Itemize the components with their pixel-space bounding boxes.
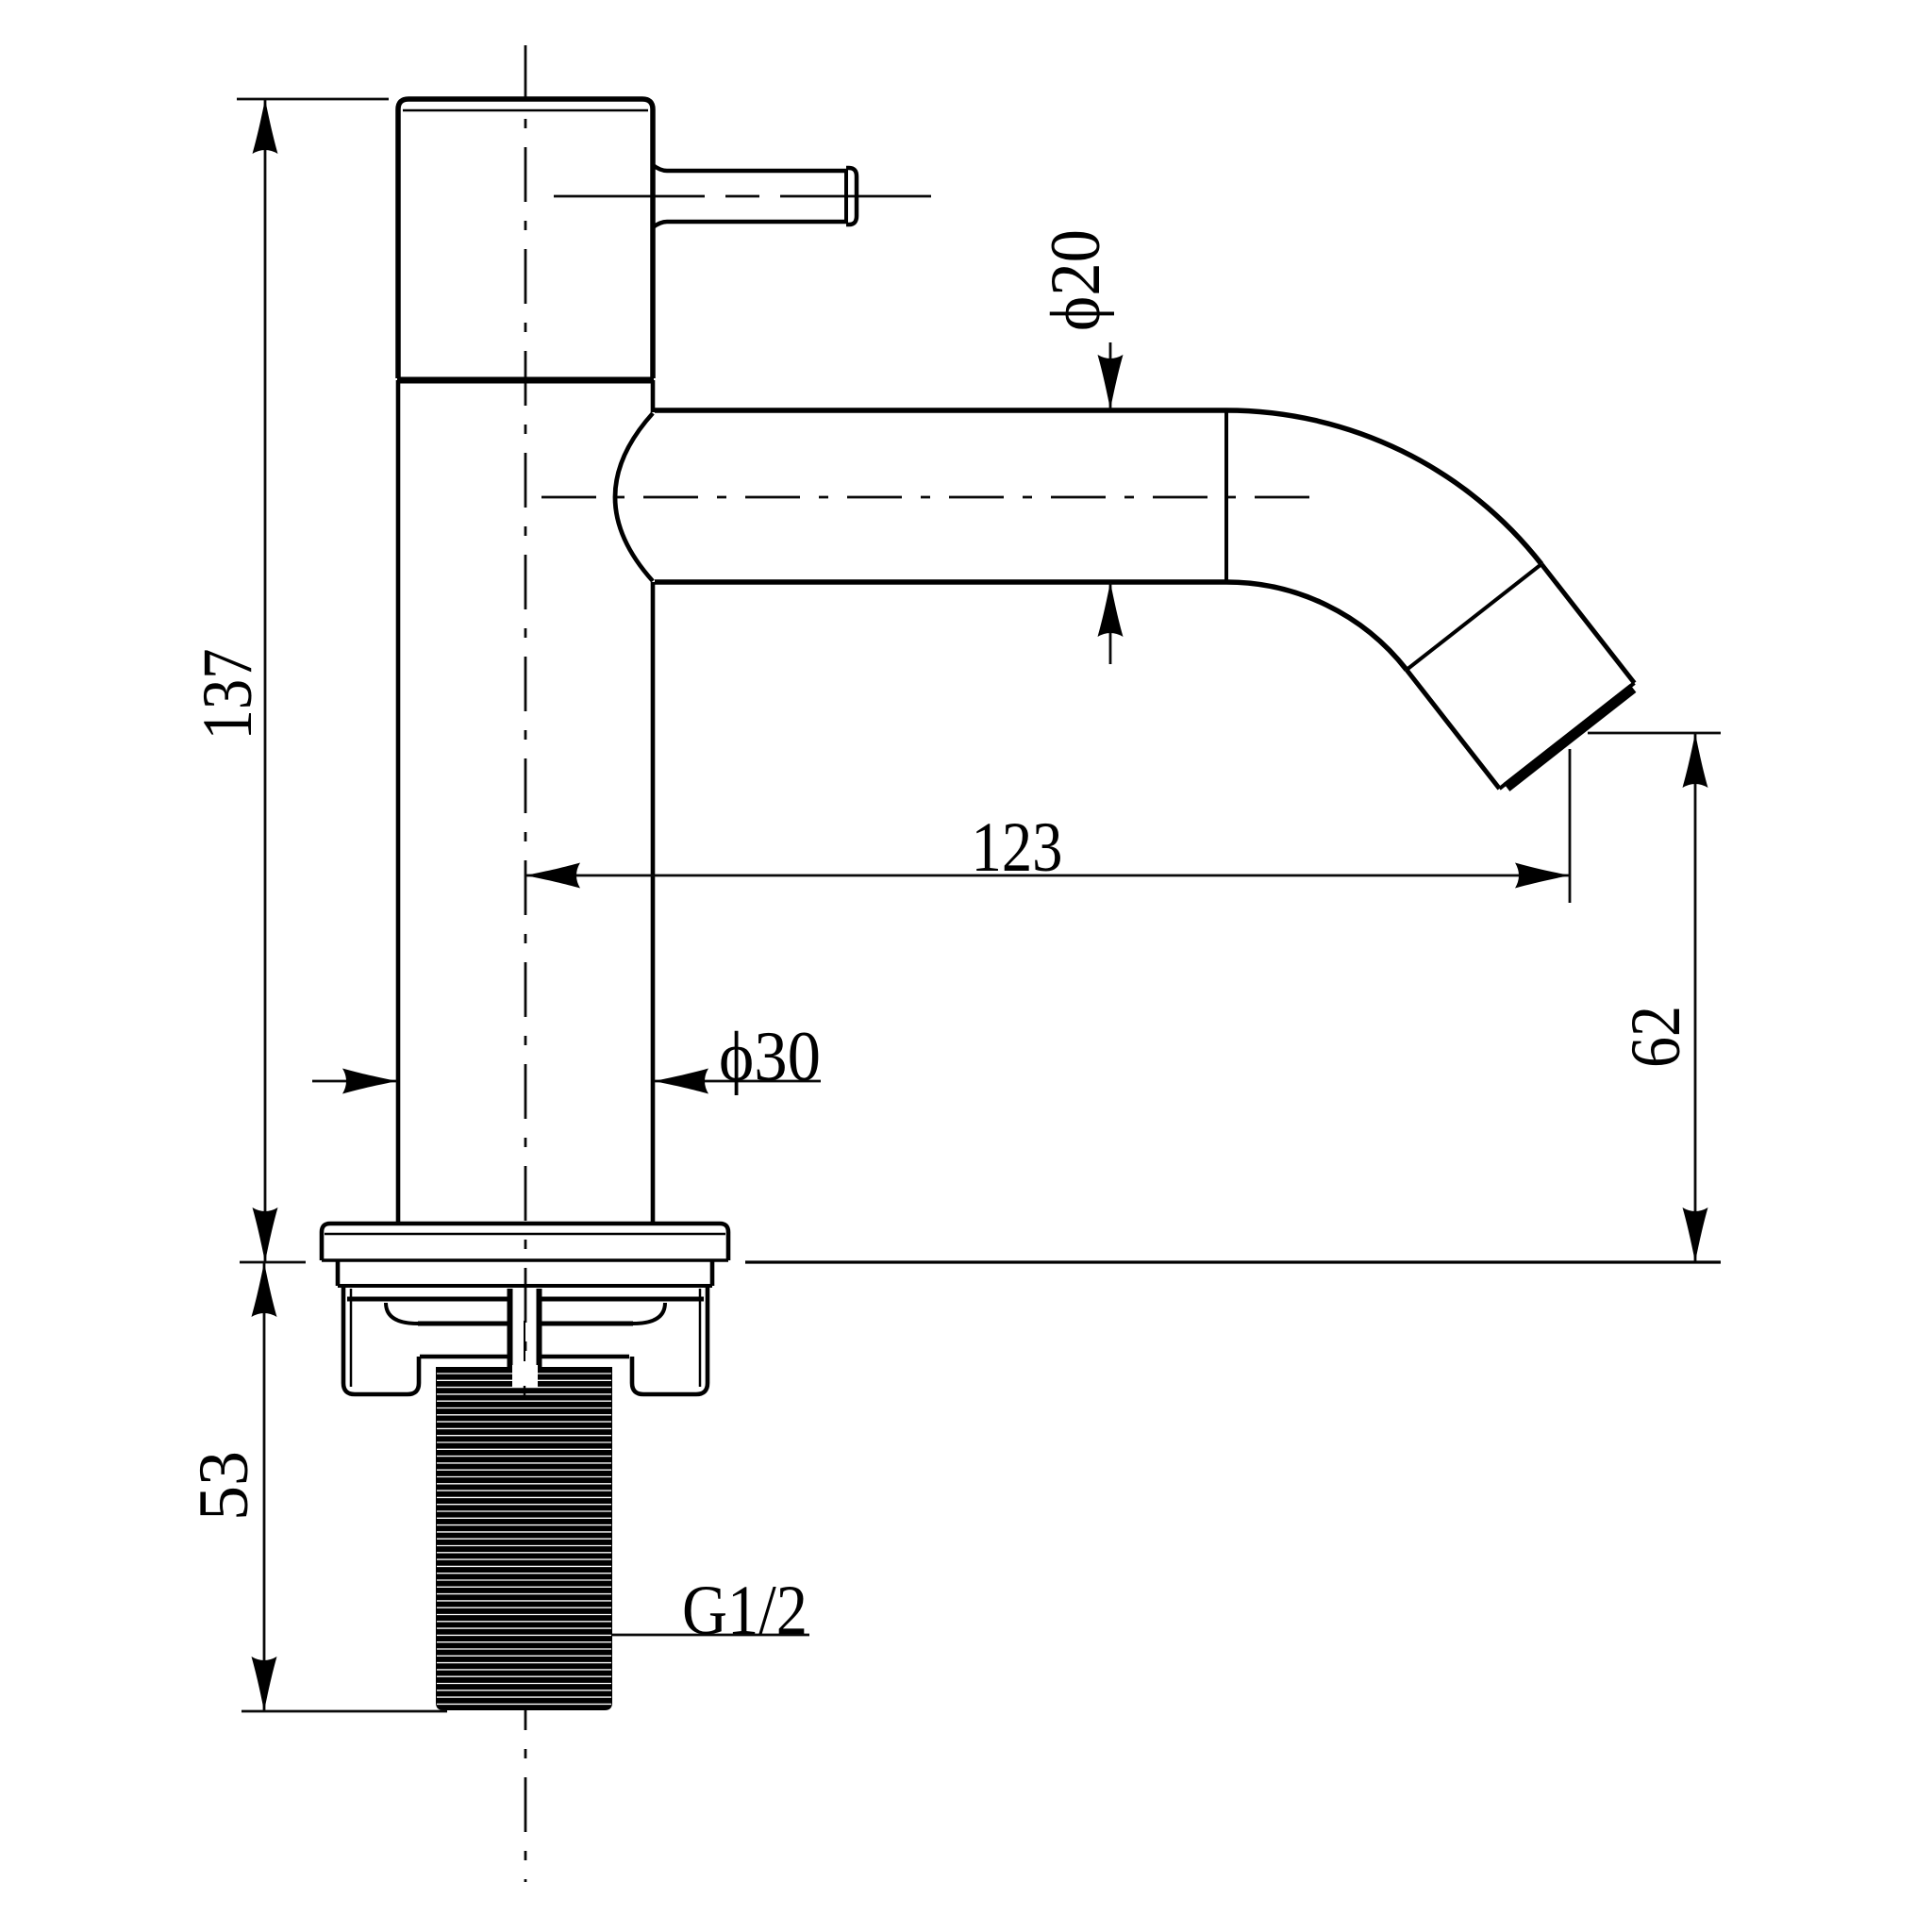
svg-text:G1/2: G1/2 bbox=[682, 1572, 808, 1650]
svg-text:137: 137 bbox=[189, 649, 267, 741]
svg-text:123: 123 bbox=[972, 808, 1063, 887]
svg-text:ϕ20: ϕ20 bbox=[1037, 229, 1115, 331]
svg-text:ϕ30: ϕ30 bbox=[719, 1018, 821, 1096]
svg-text:53: 53 bbox=[185, 1451, 263, 1521]
svg-text:62: 62 bbox=[1617, 1006, 1695, 1068]
